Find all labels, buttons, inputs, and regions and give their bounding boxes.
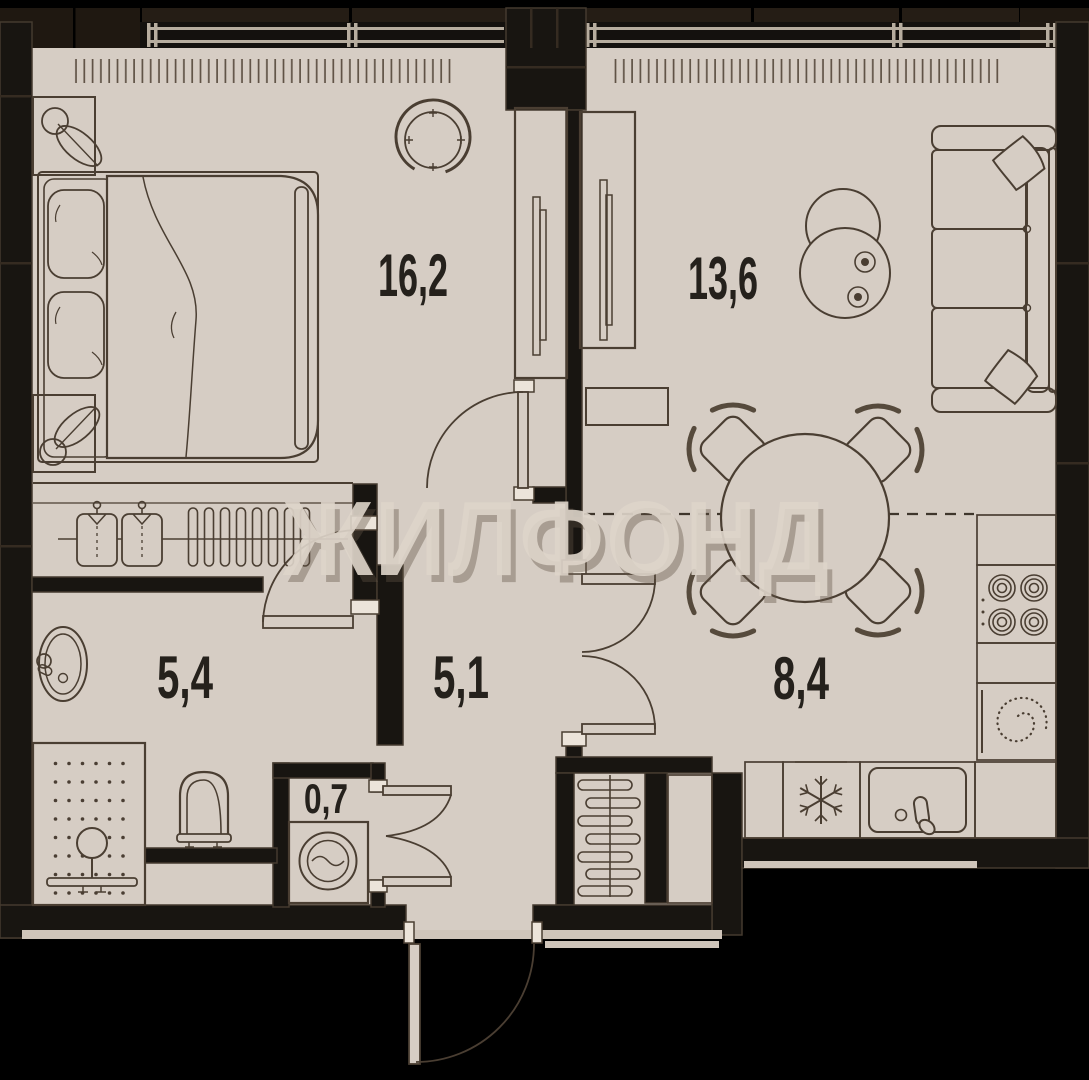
watermark-text: ЖИЛФОНД <box>282 480 831 598</box>
radiator-icon <box>612 58 1002 83</box>
label-laundry: 0,7 <box>304 775 348 822</box>
floor-plan-svg: 16,2 13,6 5,4 5,1 8,4 0,7 ЖИЛФОНД ЖИЛФОН… <box>0 0 1089 1080</box>
label-kitchen: 8,4 <box>773 645 829 712</box>
coffee-tables-icon <box>800 189 890 318</box>
watermark: ЖИЛФОНД ЖИЛФОНД <box>282 480 836 605</box>
label-bedroom: 16,2 <box>378 242 448 309</box>
label-living: 13,6 <box>688 245 758 312</box>
radiator-icon <box>72 58 452 83</box>
label-bathroom: 5,4 <box>157 644 213 711</box>
label-hallway: 5,1 <box>433 644 489 711</box>
toilet-icon <box>177 772 231 847</box>
floor-plan-canvas: 16,2 13,6 5,4 5,1 8,4 0,7 ЖИЛФОНД ЖИЛФОН… <box>0 0 1089 1080</box>
